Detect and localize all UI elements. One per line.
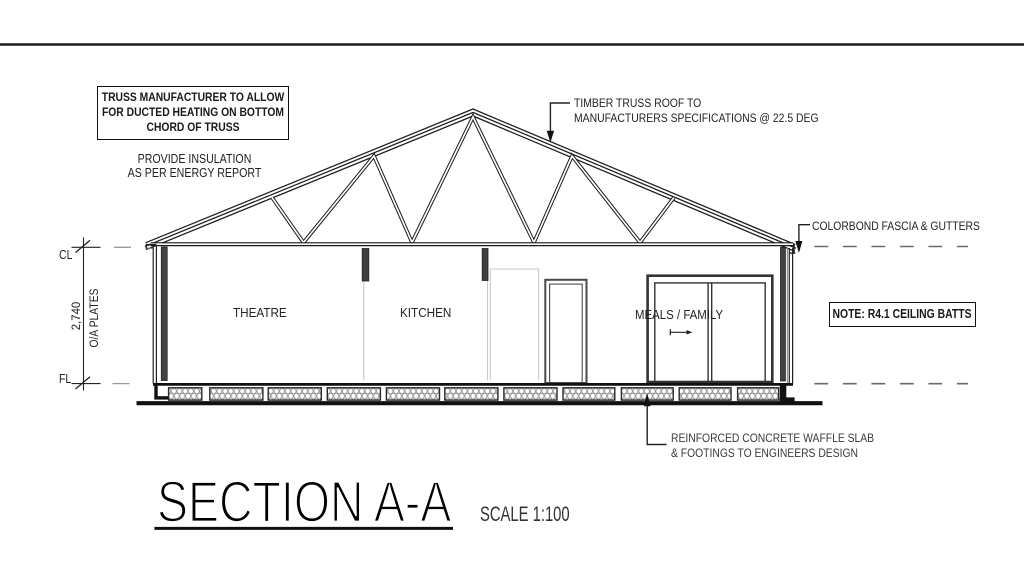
svg-text:SECTION A-A: SECTION A-A <box>157 471 452 535</box>
